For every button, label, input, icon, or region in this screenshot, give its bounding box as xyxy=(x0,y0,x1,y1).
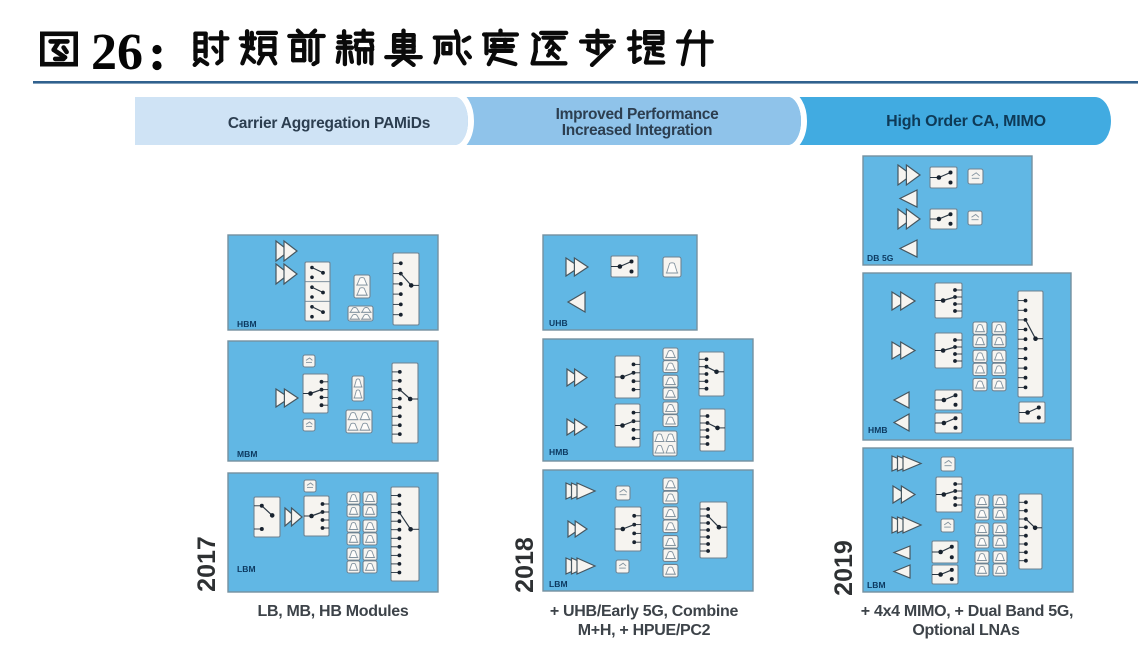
svg-text:2019: 2019 xyxy=(830,540,858,596)
svg-text:26: 26 xyxy=(91,24,143,81)
svg-text:LBM: LBM xyxy=(237,564,256,574)
svg-text:Optional LNAs: Optional LNAs xyxy=(912,622,1020,639)
svg-text:+ UHB/Early 5G, Combine: + UHB/Early 5G, Combine xyxy=(550,603,739,620)
svg-text:+ 4x4 MIMO, + Dual Band 5G,: + 4x4 MIMO, + Dual Band 5G, xyxy=(861,603,1073,620)
svg-text:2018: 2018 xyxy=(511,537,539,593)
svg-text:2017: 2017 xyxy=(193,536,221,592)
svg-text:Improved Performance: Improved Performance xyxy=(556,106,720,123)
svg-text:UHB: UHB xyxy=(549,318,568,328)
svg-text:Increased Integration: Increased Integration xyxy=(562,122,712,139)
svg-text:MBM: MBM xyxy=(237,449,258,459)
svg-text:High Order CA, MIMO: High Order CA, MIMO xyxy=(886,113,1046,130)
svg-text:M+H, + HPUE/PC2: M+H, + HPUE/PC2 xyxy=(578,622,711,639)
svg-text:Carrier Aggregation PAMiDs: Carrier Aggregation PAMiDs xyxy=(228,115,430,132)
svg-text:DB 5G: DB 5G xyxy=(867,253,894,263)
svg-text:LBM: LBM xyxy=(549,579,568,589)
svg-text:HBM: HBM xyxy=(237,319,257,329)
svg-text:HMB: HMB xyxy=(549,447,569,457)
svg-text:LBM: LBM xyxy=(867,580,886,590)
svg-text:LB, MB, HB Modules: LB, MB, HB Modules xyxy=(257,603,408,620)
svg-text:HMB: HMB xyxy=(868,425,888,435)
